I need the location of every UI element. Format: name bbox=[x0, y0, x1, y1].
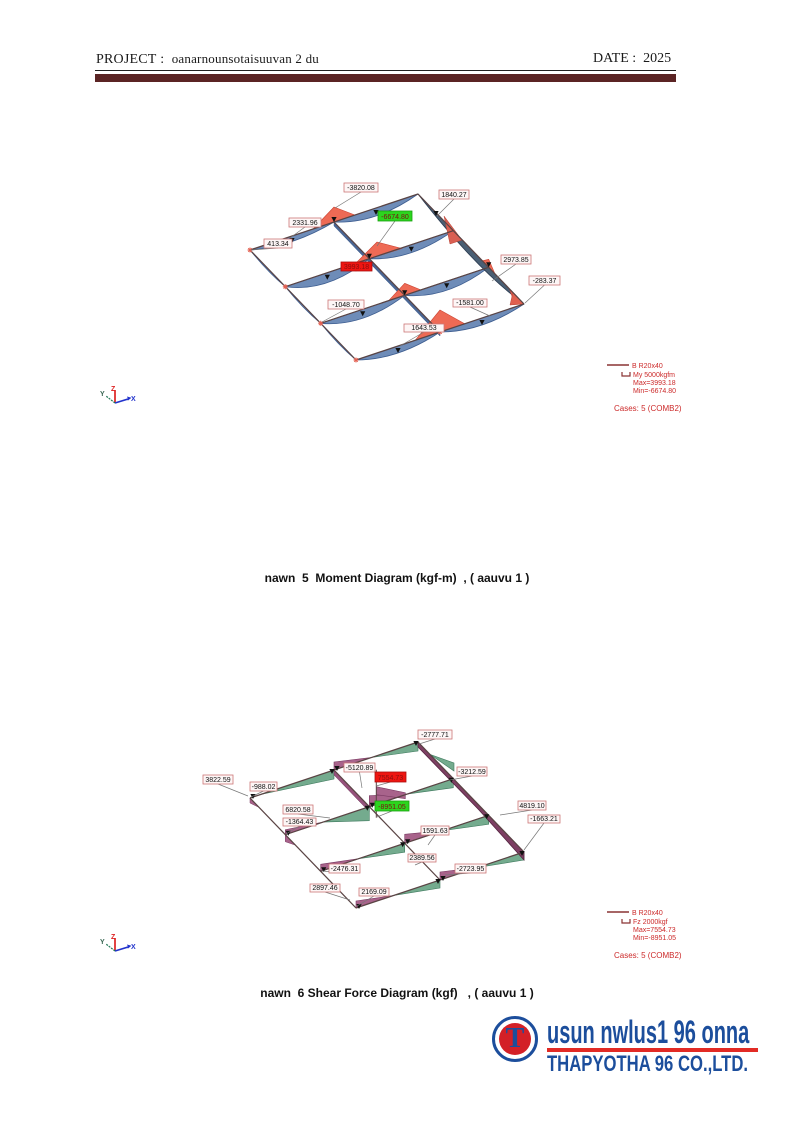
svg-text:1591.63: 1591.63 bbox=[422, 828, 447, 835]
svg-text:2331.96: 2331.96 bbox=[292, 220, 317, 227]
svg-text:2389.56: 2389.56 bbox=[409, 855, 434, 862]
svg-text:2169.09: 2169.09 bbox=[361, 889, 386, 896]
svg-text:413.34: 413.34 bbox=[267, 241, 289, 248]
svg-text:2973.85: 2973.85 bbox=[503, 257, 528, 264]
svg-text:-1663.21: -1663.21 bbox=[530, 816, 558, 823]
svg-text:Cases: 5 (COMB2): Cases: 5 (COMB2) bbox=[614, 404, 682, 413]
svg-text:B R20x40: B R20x40 bbox=[632, 363, 663, 370]
svg-text:4819.10: 4819.10 bbox=[519, 803, 544, 810]
svg-text:Min=-8951.05: Min=-8951.05 bbox=[633, 935, 676, 942]
svg-text:-2723.95: -2723.95 bbox=[457, 866, 485, 873]
svg-text:Z: Z bbox=[111, 386, 116, 393]
svg-text:Y: Y bbox=[100, 391, 105, 398]
svg-text:1643.53: 1643.53 bbox=[411, 325, 436, 332]
svg-text:6820.58: 6820.58 bbox=[285, 807, 310, 814]
svg-text:Max=3993.18: Max=3993.18 bbox=[633, 380, 676, 387]
svg-text:Max=7554.73: Max=7554.73 bbox=[633, 927, 676, 934]
svg-text:B R20x40: B R20x40 bbox=[632, 910, 663, 917]
svg-text:-2476.31: -2476.31 bbox=[331, 866, 359, 873]
svg-text:-3820.08: -3820.08 bbox=[347, 185, 375, 192]
svg-text:3993.18: 3993.18 bbox=[344, 264, 369, 271]
svg-text:3822.59: 3822.59 bbox=[205, 777, 230, 784]
svg-text:-1581.00: -1581.00 bbox=[456, 300, 484, 307]
svg-text:X: X bbox=[131, 944, 136, 951]
svg-text:Y: Y bbox=[100, 939, 105, 946]
svg-text:7554.73: 7554.73 bbox=[378, 775, 403, 782]
svg-text:My 5000kgfm: My 5000kgfm bbox=[633, 372, 675, 379]
svg-text:Min=-6674.80: Min=-6674.80 bbox=[633, 388, 676, 395]
svg-text:-1364.43: -1364.43 bbox=[286, 819, 314, 826]
svg-text:-6674.80: -6674.80 bbox=[381, 214, 409, 221]
svg-text:-1048.70: -1048.70 bbox=[332, 302, 360, 309]
svg-text:-5120.89: -5120.89 bbox=[346, 765, 374, 772]
svg-text:X: X bbox=[131, 396, 136, 403]
svg-text:-8951.05: -8951.05 bbox=[378, 804, 406, 811]
svg-text:-988.02: -988.02 bbox=[252, 784, 276, 791]
svg-text:-2777.71: -2777.71 bbox=[421, 732, 449, 739]
svg-text:Z: Z bbox=[111, 934, 116, 941]
svg-text:-283.37: -283.37 bbox=[533, 278, 557, 285]
svg-text:2897.46: 2897.46 bbox=[312, 885, 337, 892]
svg-text:Cases: 5 (COMB2): Cases: 5 (COMB2) bbox=[614, 951, 682, 960]
svg-text:1840.27: 1840.27 bbox=[441, 192, 466, 199]
svg-text:Fz 2000kgf: Fz 2000kgf bbox=[633, 919, 668, 926]
svg-text:-3212.59: -3212.59 bbox=[458, 769, 486, 776]
